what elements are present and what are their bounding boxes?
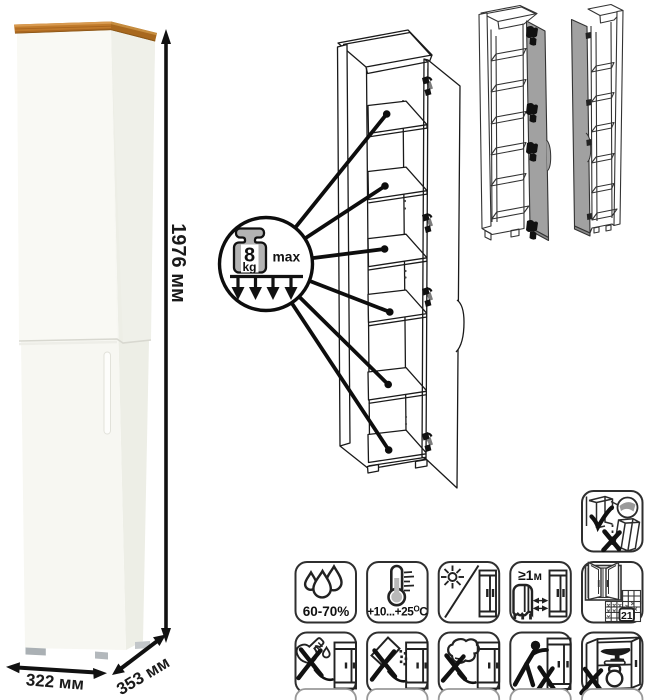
svg-text:21: 21	[621, 610, 633, 622]
svg-text:+10...+25OC: +10...+25OC	[367, 605, 428, 619]
svg-text:1976 мм: 1976 мм	[167, 223, 189, 303]
svg-text:max: max	[273, 250, 301, 265]
svg-text:kg: kg	[242, 260, 256, 274]
svg-text:60-70%: 60-70%	[303, 604, 350, 619]
